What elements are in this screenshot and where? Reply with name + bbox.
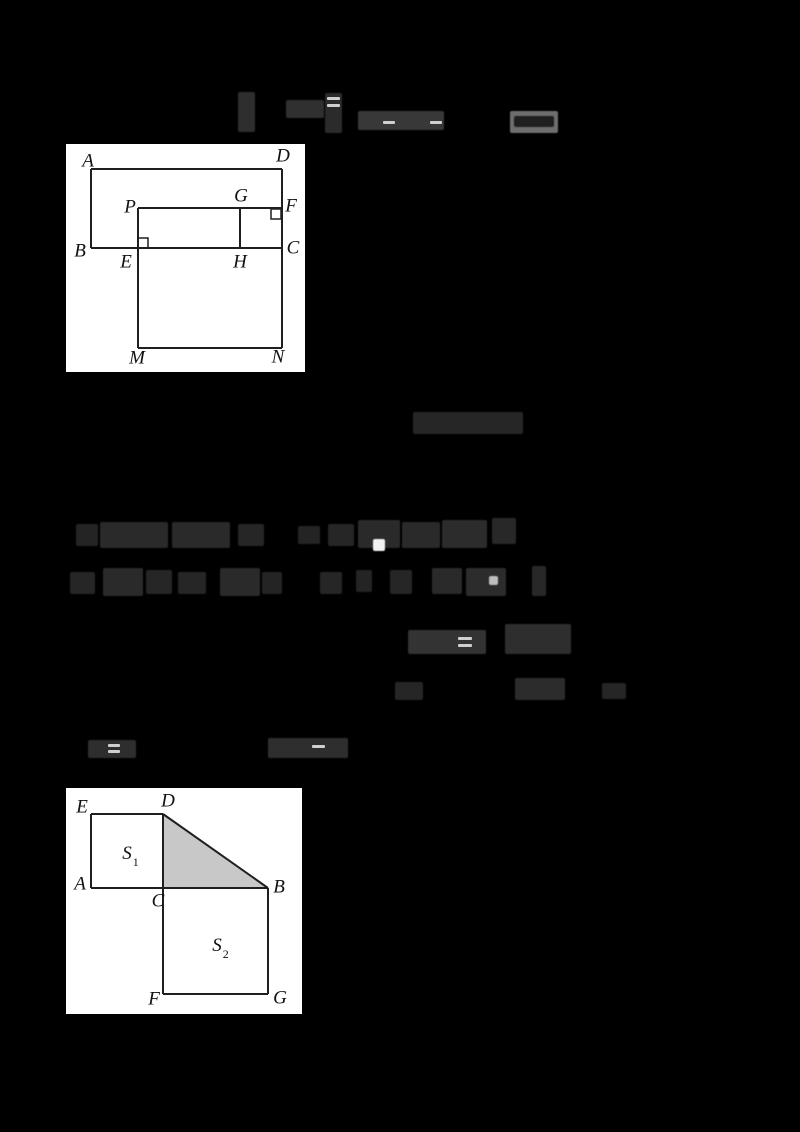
vertex-label-H: H bbox=[233, 253, 247, 272]
illegible-text-run bbox=[532, 566, 546, 596]
illegible-text-run bbox=[442, 520, 487, 548]
equals-dash bbox=[383, 121, 395, 124]
illegible-text-run bbox=[356, 570, 372, 592]
illegible-text-run bbox=[373, 539, 385, 551]
equals-dash bbox=[327, 104, 340, 107]
right-angle-mark bbox=[271, 209, 281, 219]
illegible-text-run bbox=[88, 740, 136, 758]
illegible-text-run bbox=[268, 738, 348, 758]
illegible-text-run bbox=[172, 522, 230, 548]
illegible-text-run bbox=[70, 572, 95, 594]
illegible-text-run bbox=[408, 630, 486, 654]
illegible-text-run bbox=[432, 568, 462, 594]
vertex-label-G: G bbox=[234, 187, 248, 206]
vertex-label-C: C bbox=[152, 892, 165, 911]
illegible-text-run bbox=[298, 526, 320, 544]
right-angle-mark bbox=[138, 238, 148, 248]
illegible-text-run bbox=[390, 570, 412, 594]
vertex-label-A: A bbox=[82, 152, 94, 171]
equals-dash bbox=[327, 97, 340, 100]
equals-dash bbox=[108, 744, 120, 747]
illegible-text-run bbox=[262, 572, 282, 594]
illegible-text-run bbox=[489, 576, 498, 585]
illegible-text-run bbox=[515, 678, 565, 700]
vertex-label-D: D bbox=[276, 147, 290, 166]
vertex-label-A: A bbox=[74, 875, 86, 894]
illegible-text-run bbox=[238, 524, 264, 546]
illegible-text-run bbox=[320, 572, 342, 594]
vertex-label-F: F bbox=[285, 197, 297, 216]
illegible-text-run bbox=[492, 518, 516, 544]
vertex-label-N: N bbox=[272, 348, 285, 367]
illegible-text-run bbox=[238, 92, 255, 132]
illegible-text-run bbox=[466, 568, 506, 596]
region-label-S1: S1 bbox=[122, 844, 138, 866]
equals-dash bbox=[458, 637, 472, 640]
equals-dash bbox=[312, 745, 325, 748]
vertex-label-D: D bbox=[161, 792, 175, 811]
vertex-label-E: E bbox=[120, 253, 132, 272]
figure1-drawing bbox=[66, 144, 305, 372]
illegible-text-run bbox=[103, 568, 143, 596]
vertex-label-G: G bbox=[273, 989, 287, 1008]
illegible-text-run bbox=[146, 570, 172, 594]
figure2-square-S1-AEDC-shaded-triangle-DCB-square-S2-CBGF: EDS1ACBS2FG bbox=[66, 788, 302, 1014]
vertex-label-F: F bbox=[148, 990, 160, 1009]
illegible-text-run bbox=[402, 522, 440, 548]
vertex-label-P: P bbox=[124, 198, 136, 217]
illegible-text-run bbox=[395, 682, 423, 700]
equals-dash bbox=[430, 121, 442, 124]
illegible-text-run bbox=[413, 412, 523, 434]
region-label-S2: S2 bbox=[212, 936, 228, 958]
illegible-text-run bbox=[178, 572, 206, 594]
figure1-rectangle-ABCD-with-inner-rectangle-PFCE-segment-GH-and-square-EMNC: ADPGFBEHCMN bbox=[66, 144, 305, 372]
document-page: ADPGFBEHCMNEDS1ACBS2FG bbox=[0, 0, 800, 1132]
equals-dash bbox=[458, 644, 472, 647]
illegible-text-run bbox=[602, 683, 626, 699]
vertex-label-B: B bbox=[273, 878, 285, 897]
figure2-drawing bbox=[66, 788, 302, 1014]
vertex-label-M: M bbox=[129, 349, 145, 368]
illegible-text-run bbox=[505, 624, 571, 654]
equals-dash bbox=[108, 750, 120, 753]
illegible-text-run bbox=[286, 100, 324, 118]
vertex-label-E: E bbox=[76, 798, 88, 817]
illegible-text-run bbox=[328, 524, 354, 546]
illegible-text-run bbox=[76, 524, 98, 546]
illegible-text-run bbox=[220, 568, 260, 596]
vertex-label-B: B bbox=[74, 242, 86, 261]
illegible-text-run bbox=[514, 116, 554, 127]
illegible-text-run bbox=[100, 522, 168, 548]
vertex-label-C: C bbox=[287, 239, 300, 258]
